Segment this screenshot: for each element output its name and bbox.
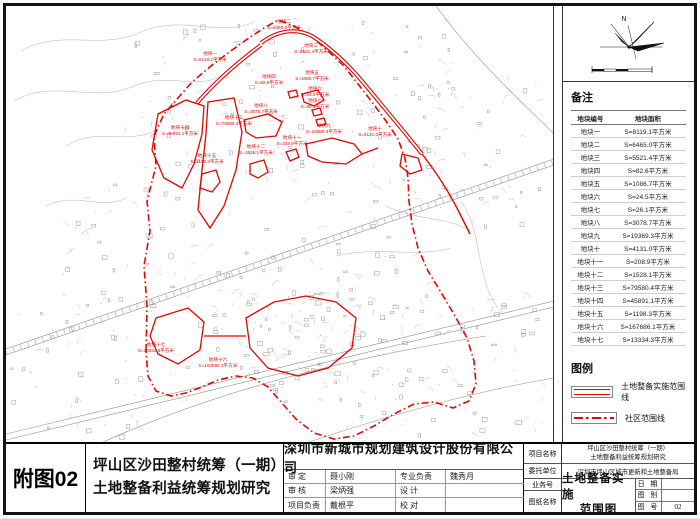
right-block-labels: 项目名称 委托单位 业务号 图纸名称 (524, 444, 562, 512)
notes-section: 备注 地块编号 地块面积 地块一S=8119.1平方米地块二S=6465.0平方… (563, 82, 694, 346)
signoff-table: 审 定 聂小刚 专业负责 魏秀月 审 核 梁炳强 设 计 项目负责 戴根平 校 … (284, 470, 523, 512)
proofreader-value (446, 498, 524, 512)
table-row: 地块六S=24.5平方米 (571, 190, 686, 203)
table-row: 地块十S=4131.0平方米 (571, 242, 686, 255)
table-row: 地块八S=3078.7平方米 (571, 216, 686, 229)
table-row: 地块七S=26.1平方米 (571, 203, 686, 216)
discipline-lead-value: 魏秀月 (446, 470, 524, 484)
map-plot-label: 地块十五S=1198.3平方米 (190, 153, 223, 165)
col-plot-area: 地块面积 (610, 111, 686, 125)
scale-bar (592, 66, 652, 73)
sheet-meta: 日 期 图 别 图 号 02 (636, 479, 694, 512)
map-plot-label: 地块十七S=13334.3平方米 (138, 342, 174, 354)
project-lead-value: 戴根平 (326, 498, 396, 512)
table-row: 地块四S=82.6平方米 (571, 164, 686, 177)
project-name-label: 项目名称 (524, 444, 561, 464)
map-plot-label: 地块二S=6465.0平方米 (267, 19, 301, 31)
project-title-line1: 坪山区沙田整村统筹（一期） (93, 455, 283, 478)
table-row: 地块二S=6465.0平方米 (571, 138, 686, 151)
map-plot-label: 地块十六S=167686.1平方米 (199, 357, 238, 369)
figure-number: 附图02 (6, 444, 86, 512)
compass-section: N (563, 6, 694, 82)
sheet-no-row: 图 号 02 (636, 502, 694, 512)
date-row: 日 期 (636, 479, 694, 490)
date-value (662, 479, 694, 489)
discipline-lead-label: 专业负责 (396, 470, 446, 484)
table-row: 地块五S=1086.7平方米 (571, 177, 686, 190)
table-row: 地块十五S=1198.3平方米 (571, 307, 686, 320)
right-panel: N (562, 6, 694, 442)
title-block-right: 项目名称 委托单位 业务号 图纸名称 坪山区沙田整村统筹（一期） 土地整备利益统… (524, 444, 694, 512)
approver-value: 聂小刚 (326, 470, 396, 484)
table-row: 地块十二S=1528.1平方米 (571, 268, 686, 281)
reviewer-label: 审 核 (284, 484, 326, 498)
sheet-type-label: 图 别 (636, 490, 662, 500)
sheet-info: 土地整备实施 范围图 日 期 图 别 (562, 479, 694, 512)
map-plot-label: 地块三S=5521.4平方米 (294, 43, 328, 55)
legend-title: 图例 (571, 360, 686, 376)
project-name-value: 坪山区沙田整村统筹（一期） 土地整备利益统筹规划研究 (562, 444, 694, 464)
sheet-name-value: 土地整备实施 范围图 (562, 479, 636, 512)
client-label: 委托单位 (524, 464, 561, 479)
col-plot-id: 地块编号 (571, 111, 610, 125)
table-row: 地块十三S=79580.4平方米 (571, 281, 686, 294)
sheet-frame: 地块一S=8119.1平方米地块二S=6465.0平方米地块三S=5521.4平… (3, 3, 697, 515)
map-plot-label: 地块十S=4131.0平方米 (358, 126, 392, 138)
notes-title: 备注 (571, 89, 686, 105)
map-area: 地块一S=8119.1平方米地块二S=6465.0平方米地块三S=5521.4平… (6, 6, 554, 442)
map-plot-label: 地块十一S=208.9平方米 (276, 135, 307, 147)
company-name: 深圳市新城市规划建筑设计股份有限公司 (284, 444, 523, 470)
proofreader-label: 校 对 (396, 498, 446, 512)
map-label-layer: 地块一S=8119.1平方米地块二S=6465.0平方米地块三S=5521.4平… (6, 6, 553, 442)
map-plot-label: 地块八S=3078.7平方米 (244, 103, 278, 115)
north-arrow-icon: N (600, 16, 664, 59)
table-header-row: 地块编号 地块面积 (571, 111, 686, 125)
sheet-body: 地块一S=8119.1平方米地块二S=6465.0平方米地块三S=5521.4平… (6, 6, 694, 442)
sheet-no-label: 图 号 (636, 502, 662, 512)
map-plot-label: 地块十四S=45891.1平方米 (162, 125, 198, 137)
plots-table-body: 地块一S=8119.1平方米地块二S=6465.0平方米地块三S=5521.4平… (571, 125, 686, 346)
map-plot-label: 地块一S=8119.1平方米 (193, 51, 226, 63)
map-plot-label: 地块七S=26.1平方米 (301, 98, 329, 110)
designer-value (446, 484, 524, 498)
company-cell: 深圳市新城市规划建筑设计股份有限公司 审 定 聂小刚 专业负责 魏秀月 审 核 … (284, 444, 524, 512)
drawing-sheet: 地块一S=8119.1平方米地块二S=6465.0平方米地块三S=5521.4平… (0, 0, 700, 518)
approver-label: 审 定 (284, 470, 326, 484)
legend-section: 图例 土地整备实施范围线 社区范围线 (563, 346, 694, 433)
table-row: 地块九S=19369.3平方米 (571, 229, 686, 242)
table-row: 地块一S=8119.1平方米 (571, 125, 686, 138)
legend-item-community-range: 社区范围线 (571, 412, 686, 424)
table-row: 地块十一S=208.9平方米 (571, 255, 686, 268)
job-no-label: 业务号 (524, 479, 561, 491)
right-block-values: 坪山区沙田整村统筹（一期） 土地整备利益统筹规划研究 深圳市坪山区城市更新和土地… (562, 444, 694, 512)
reviewer-value: 梁炳强 (326, 484, 396, 498)
sheet-type-row: 图 别 (636, 490, 694, 501)
dash-dot-line-icon (571, 412, 617, 424)
map-plot-label: 地块四S=82.6平方米 (255, 74, 283, 86)
project-title-line2: 土地整备利益统筹规划研究 (93, 478, 283, 501)
map-plot-label: 地块六S=24.5平方米 (301, 86, 329, 98)
map-plot-label: 地块十三S=79580.4平方米 (216, 115, 252, 127)
sheet-type-value (662, 490, 694, 500)
date-label: 日 期 (636, 479, 662, 489)
map-plot-label: 地块十二S=1528.1平方米 (239, 144, 273, 156)
sheet-name-label: 图纸名称 (524, 491, 561, 512)
title-block: 附图02 坪山区沙田整村统筹（一期） 土地整备利益统筹规划研究 深圳市新城市规划… (6, 442, 694, 512)
legend-item-implementation-range: 土地整备实施范围线 (571, 381, 686, 403)
svg-text:N: N (621, 16, 626, 23)
table-row: 地块三S=5521.4平方米 (571, 151, 686, 164)
solid-double-line-icon (571, 386, 613, 398)
map-plot-label: 地块九S=19369.3平方米 (306, 123, 342, 135)
sheet-no-value: 02 (662, 502, 694, 512)
map-plot-label: 地块五S=1086.7平方米 (295, 70, 329, 82)
plots-table: 地块编号 地块面积 地块一S=8119.1平方米地块二S=6465.0平方米地块… (571, 110, 686, 346)
table-row: 地块十六S=167686.1平方米 (571, 320, 686, 333)
designer-label: 设 计 (396, 484, 446, 498)
table-row: 地块十七S=13334.3平方米 (571, 333, 686, 346)
project-title: 坪山区沙田整村统筹（一期） 土地整备利益统筹规划研究 (86, 444, 284, 512)
table-row: 地块十四S=45891.1平方米 (571, 294, 686, 307)
project-lead-label: 项目负责 (284, 498, 326, 512)
